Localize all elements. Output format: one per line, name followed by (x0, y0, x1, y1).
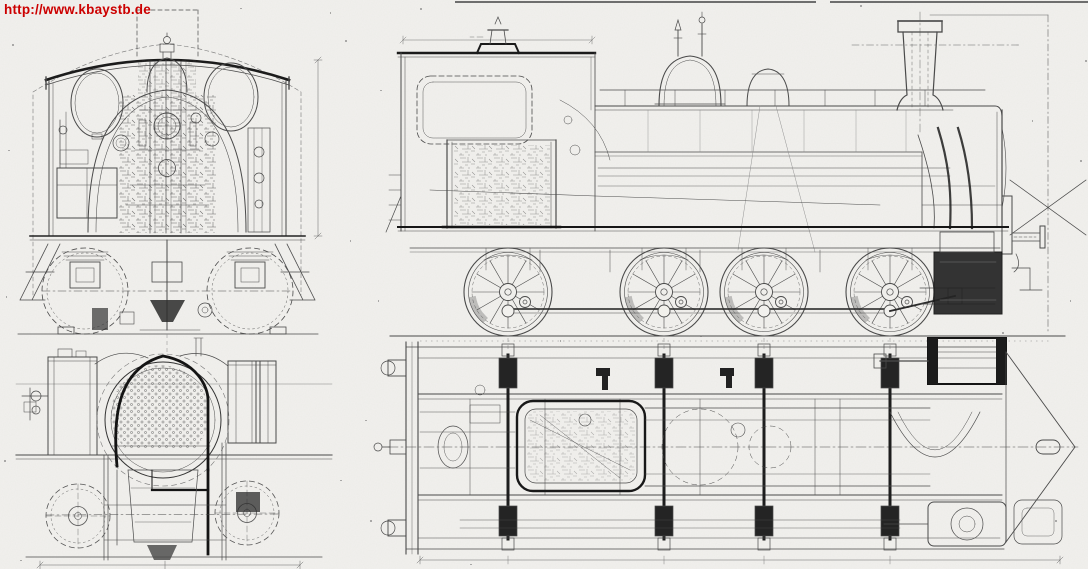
locomotive-blueprint-drawing (0, 0, 1088, 569)
blueprint-scan-page: http://www.kbaystb.de (0, 0, 1088, 569)
watermark-url: http://www.kbaystb.de (4, 2, 151, 17)
firebox-plan (517, 401, 645, 491)
firebox-side (443, 140, 560, 228)
